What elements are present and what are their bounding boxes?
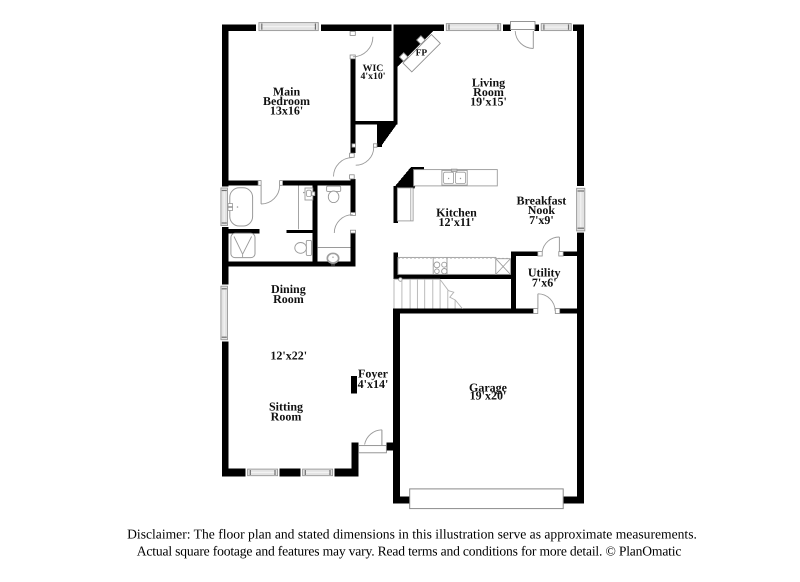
svg-text:19'x20': 19'x20' (470, 389, 507, 403)
svg-text:Room: Room (271, 410, 302, 424)
svg-text:FP: FP (416, 48, 428, 58)
svg-text:7'x6': 7'x6' (532, 275, 557, 289)
svg-text:4'x14': 4'x14' (358, 377, 389, 391)
svg-text:19'x15': 19'x15' (470, 94, 507, 108)
svg-text:12'x22': 12'x22' (270, 349, 307, 363)
svg-text:Room: Room (273, 292, 304, 306)
svg-text:Disclaimer: The floor plan and: Disclaimer: The floor plan and stated di… (127, 526, 697, 541)
svg-text:4'x10': 4'x10' (360, 71, 385, 82)
svg-text:7'x9': 7'x9' (529, 213, 554, 227)
svg-text:12'x11': 12'x11' (438, 215, 474, 229)
svg-text:13x16': 13x16' (270, 103, 303, 117)
svg-text:Actual square footage and feat: Actual square footage and features may v… (137, 544, 682, 559)
